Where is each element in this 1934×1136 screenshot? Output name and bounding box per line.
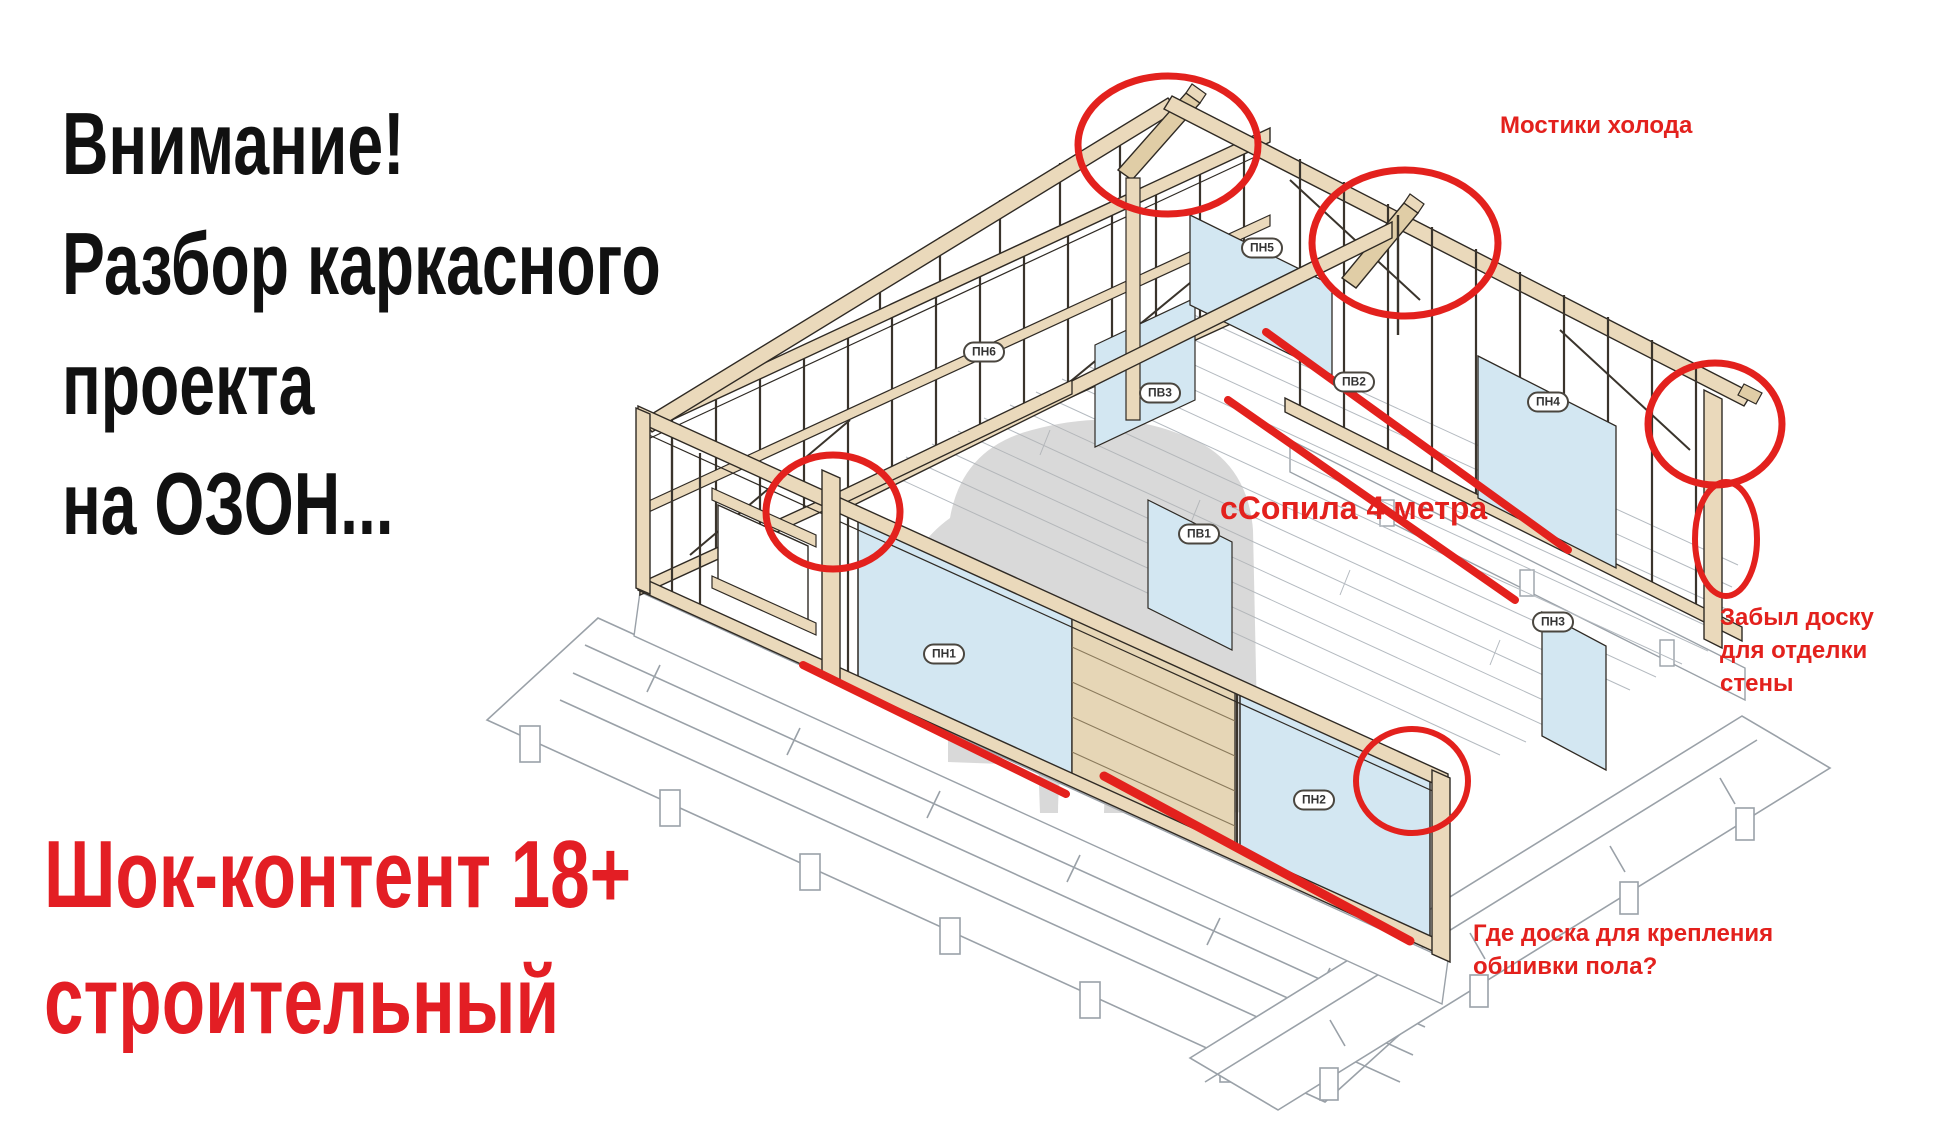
annotation-floor-sheathing: Где доска для крепления обшивки пола? xyxy=(1473,917,1773,983)
headline-line: на ОЗОН... xyxy=(62,444,661,564)
frame-label-pn2: ПН2 xyxy=(1293,790,1335,811)
annotation-rafter-length: сСопила 4 метра xyxy=(1220,490,1487,527)
frame-label-pn6: ПН6 xyxy=(963,342,1005,363)
headline-line: Внимание! xyxy=(62,84,661,204)
annotation-line: Где доска для крепления xyxy=(1473,917,1773,950)
annotation-line: Забыл доску xyxy=(1720,601,1874,634)
frame-label-pv1: ПВ1 xyxy=(1178,524,1220,545)
annotation-missing-wall-board: Забыл доску для отделки стены xyxy=(1720,601,1874,700)
frame-label-pv3: ПВ3 xyxy=(1139,383,1181,404)
shock-banner-line: строительный xyxy=(44,938,631,1064)
shock-content-banner: Шок-контент 18+ строительный xyxy=(44,812,631,1064)
jamb-post xyxy=(822,470,840,682)
headline-line: Разбор каркасного xyxy=(62,204,661,324)
frame-label-pn3: ПН3 xyxy=(1532,612,1574,633)
highlight-circle-ridge-2 xyxy=(1312,170,1498,316)
annotation-line: для отделки xyxy=(1720,634,1874,667)
frame-label-pv2: ПВ2 xyxy=(1333,372,1375,393)
annotation-line: стены xyxy=(1720,667,1874,700)
headline-line: проекта xyxy=(62,324,661,444)
window-panel-right xyxy=(1542,612,1606,770)
main-headline: Внимание! Разбор каркасного проекта на О… xyxy=(62,84,661,564)
annotation-line: обшивки пола? xyxy=(1473,950,1773,983)
shock-banner-line: Шок-контент 18+ xyxy=(44,812,631,938)
frame-label-pn5: ПН5 xyxy=(1241,238,1283,259)
thumbnail-canvas: ПН5 ПН6 ПВ3 ПВ2 ПН4 ПВ1 ПН1 ПН3 ПН2 Мост… xyxy=(0,0,1934,1136)
frame-label-pn1: ПН1 xyxy=(923,644,965,665)
annotation-cold-bridges: Мостики холода xyxy=(1500,112,1692,140)
frame-label-pn4: ПН4 xyxy=(1527,392,1569,413)
front-right-corner-post xyxy=(1432,770,1450,962)
